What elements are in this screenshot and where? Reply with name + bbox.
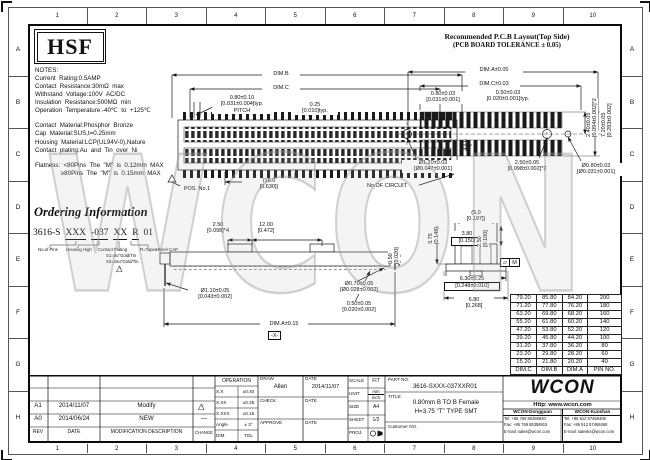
size-value: A4 xyxy=(368,404,384,410)
dim-b-cell: 69.80 xyxy=(537,311,563,319)
ruler-number: 4 xyxy=(207,7,267,24)
check-label: CHECK xyxy=(260,398,276,403)
corner-mark xyxy=(640,1,650,12)
pcb-hole-left-label: Ø1.20±0.03[Ø0.047±0.001] xyxy=(402,160,464,173)
frame-ruler-left: ABCDEFGH xyxy=(8,24,28,443)
dim-c-cell: 15.20 xyxy=(511,359,537,367)
unit-value: mm inch xyxy=(368,389,384,400)
ruler-number: 4 xyxy=(207,444,267,453)
rev-a0-date: 2014/06/24 xyxy=(48,415,100,422)
ruler-number: 1 xyxy=(28,444,88,453)
dim-a-cell: 52.20 xyxy=(562,327,588,335)
frame-ruler-top: 12345678910 xyxy=(28,7,622,24)
pin-no-cell: 40 xyxy=(588,359,622,367)
wcon-offices: WCON-Dongguan Tel: +86 769 85358920 Fax:… xyxy=(503,409,622,441)
rev-a0: A0 xyxy=(28,415,48,422)
unit-label: UNIT xyxy=(349,391,360,396)
section-height-label: 3.75[0.148] xyxy=(428,227,440,244)
ruler-letter: F xyxy=(622,287,642,340)
dim-a-cell: 68.20 xyxy=(562,311,588,319)
ruler-number: 10 xyxy=(564,444,623,453)
ordering-part: 3616-S xyxy=(33,228,60,240)
scale-value: FIT xyxy=(368,378,384,384)
pin-table-header-cell: DIM.B xyxy=(537,367,563,375)
pin-no-cell: 180 xyxy=(588,303,622,311)
pcb-hole-right-label: Ø0.80±0.03[Ø0.031±0.001] xyxy=(566,163,626,176)
dim-b-cell: 21.80 xyxy=(537,359,563,367)
pin-table: 79.20 85.80 84.20 200 71.20 77.80 76.20 … xyxy=(510,294,622,375)
dim-c-cell: 31.20 xyxy=(511,343,537,351)
hsf-logo: HSF xyxy=(34,29,106,64)
pin-table-header-row: DIM.CDIM.BDIM.APIN NO. xyxy=(511,367,622,375)
pin-table-row: 71.20 77.80 76.20 180 xyxy=(511,303,622,311)
section-width-label: (5.0[0.197]) xyxy=(453,210,499,223)
ruler-number: 3 xyxy=(147,444,207,453)
post-dia-label: Ø1.10±0.05[0.043±0.002] xyxy=(188,288,242,301)
desc-header: MODIFICATION DESCRIPTION xyxy=(100,429,193,435)
rev-a1-date: 2014/11/07 xyxy=(48,402,100,409)
ruler-number: 7 xyxy=(385,7,445,24)
circuit-count-label: No.OF CIRCUIT xyxy=(355,183,419,189)
ruler-letter: F xyxy=(8,287,28,340)
office-email: E-mail: sales@wcon.com xyxy=(503,429,562,435)
dim-a-cell: 20.20 xyxy=(562,359,588,367)
dim-c-cell: 79.20 xyxy=(511,295,537,303)
section-outer-width-label: 6.80[0.268] xyxy=(454,297,494,310)
check-date-label: DATE xyxy=(305,398,317,403)
dim-b-cell: 61.80 xyxy=(537,319,563,327)
dim-b-cell: 53.80 xyxy=(537,327,563,335)
dim-c-cell: 63.20 xyxy=(511,311,537,319)
ruler-number: 9 xyxy=(504,444,564,453)
ruler-number: 2 xyxy=(88,444,148,453)
customer-no-label: Customer NO. xyxy=(388,424,417,429)
ordering-code: 3616-S XXX -037 XX R 01 xyxy=(33,228,153,240)
ruler-letter: D xyxy=(8,182,28,235)
ruler-number: 5 xyxy=(266,7,326,24)
rev-a1-change-flag: △ 1 xyxy=(198,402,208,412)
tail-height-label: 0.50[0.020] xyxy=(388,247,400,264)
pcb-hole-pitch-label: 2.50±0.05[0.098±0.002]*2 xyxy=(494,160,560,173)
rev-header: REV xyxy=(28,429,48,435)
ruler-letter: B xyxy=(8,77,28,130)
pin-table-row: 15.20 21.80 20.20 40 xyxy=(511,359,622,367)
pcb-dim-c-label: DIM.C±0.03 xyxy=(468,81,520,87)
drawing-title-line2: H=3.75 "T" TYPE SMT xyxy=(390,408,502,415)
ruler-letter: E xyxy=(622,234,642,287)
ruler-number: 9 xyxy=(504,7,564,24)
ordering-part: XXX xyxy=(65,228,86,240)
ruler-letter: G xyxy=(8,339,28,392)
ruler-number: 8 xyxy=(445,444,505,453)
size-label: SIZE xyxy=(349,404,359,409)
frame-ruler-right: ABCDEFGH xyxy=(622,24,642,443)
part-no-value: 3616-SXXX-037XXR01 xyxy=(388,383,502,390)
dim-a-cell: 44.20 xyxy=(562,335,588,343)
dim-b-cell: 77.80 xyxy=(537,303,563,311)
side-dim-a-label: DIM.A±0.15 xyxy=(260,321,308,327)
scale-label: SCALE xyxy=(349,378,364,383)
operation-row: X.X ±0.40 xyxy=(215,386,258,397)
pin-table-row: 39.20 45.80 44.20 100 xyxy=(511,335,622,343)
dim-a-cell: 60.20 xyxy=(562,319,588,327)
part-no-label: PART NO. xyxy=(388,377,409,382)
pin-table-row: 23.20 29.80 28.20 60 xyxy=(511,351,622,359)
pos1-label: POS. No.1 xyxy=(176,186,218,192)
ordering-label-pins: No.of Pins xyxy=(38,247,58,252)
ordering-part: 01 xyxy=(144,228,154,240)
draw-name: Allen xyxy=(258,383,303,390)
date-header: DATE xyxy=(48,429,100,435)
dim-c-cell: 47.20 xyxy=(511,327,537,335)
rev-a0-change: — xyxy=(193,415,215,422)
ordering-title: Ordering Information xyxy=(34,205,148,220)
rev-a1-desc: Modify xyxy=(100,402,193,409)
ruler-number: 1 xyxy=(28,7,88,24)
dim-b-cell: 85.80 xyxy=(537,295,563,303)
pin-table-row: 31.20 37.80 36.20 80 xyxy=(511,343,622,351)
ordering-part: XX xyxy=(113,228,127,240)
third-angle-projection-icon xyxy=(369,429,384,438)
pin-no-cell: 120 xyxy=(588,327,622,335)
dim-b-cell: 45.80 xyxy=(537,335,563,343)
draw-date-label: DATE xyxy=(305,376,317,381)
approve-date-label: DATE xyxy=(305,420,317,425)
dim-a-cell: 36.20 xyxy=(562,343,588,351)
dim-c-label: DIM.C xyxy=(262,85,300,91)
dim-a-cell: 28.20 xyxy=(562,351,588,359)
proj-label: PROJ. xyxy=(349,430,363,435)
pin-no-cell: 160 xyxy=(588,311,622,319)
ruler-number: 8 xyxy=(445,7,505,24)
ruler-number: 6 xyxy=(326,444,386,453)
pin-no-cell: 60 xyxy=(588,351,622,359)
office-email: E-mail: salesks@wcon.com xyxy=(563,429,622,435)
ordering-part: -037 xyxy=(91,228,108,240)
dim-c-cell: 23.20 xyxy=(511,351,537,359)
ordering-label-plating: Contact Plating xyxy=(98,247,127,252)
ruler-letter: D xyxy=(622,182,642,235)
pcb-dim-a-label: DIM.A±0.05 xyxy=(465,67,523,73)
pin-no-cell: 80 xyxy=(588,343,622,351)
pin-table-header-cell: DIM.C xyxy=(511,367,537,375)
operation-rows: X.X ±0.40 X.XX ±0.25 X.XXX ±0.15 Angle ±… xyxy=(215,386,258,441)
pin-table-header-cell: DIM.A xyxy=(562,367,588,375)
ruler-number: 6 xyxy=(326,7,386,24)
ruler-letter: H xyxy=(622,392,642,444)
office-block: WCON-Dongguan Tel: +86 769 85358920 Fax:… xyxy=(503,409,563,441)
sheet-label: SHEET xyxy=(349,417,364,422)
pcb-layout-title: Recommended P.C.B Layout(Top Side) xyxy=(398,32,616,41)
tab-width-label: 0.25[0.010]typ. xyxy=(292,102,338,115)
length-label: (16.0[0.630]) xyxy=(242,178,296,191)
wcon-url: Http: www.wcon.com xyxy=(503,401,622,409)
change-header: CHANGE xyxy=(193,430,215,435)
pin-table-header-cell: PIN NO. xyxy=(588,367,622,375)
drawing-sheet: 12345678910 12345678910 ABCDEFGH ABCDEFG… xyxy=(0,0,650,460)
section-base-label: 6.30±0.25[0.248±0.010] xyxy=(443,276,501,291)
pin-table-row: 47.20 53.80 52.20 120 xyxy=(511,327,622,335)
pin-table-row: 79.20 85.80 84.20 200 xyxy=(511,295,622,303)
ordering-label-housing: Housing High xyxy=(66,247,92,252)
dim-c-cell: 55.20 xyxy=(511,319,537,327)
operation-row: X.XXX ±0.15 xyxy=(215,408,258,419)
ruler-letter: G xyxy=(622,339,642,392)
pcb-span-label: 7.20±0.05[0.283±0.002] xyxy=(601,103,613,137)
pin-no-cell: 100 xyxy=(588,335,622,343)
dim-b-cell: 37.80 xyxy=(537,343,563,351)
office-block: WCON-Kunshan Tel: +86 512 57468408 Fax: … xyxy=(563,409,622,441)
cap-span-label: 12.00[0.472] xyxy=(246,222,286,235)
corner-mark xyxy=(1,450,12,460)
ruler-number: 2 xyxy=(88,7,148,24)
sheet-value: 1/2 xyxy=(368,417,384,423)
drawing-title-line1: 0.80mm B TO B Female xyxy=(390,399,502,406)
ordering-label-packing: R=Tape&Reel+CAP xyxy=(140,247,178,252)
dim-c-cell: 71.20 xyxy=(511,303,537,311)
ruler-number: 3 xyxy=(147,7,207,24)
dim-b-label: DIM.B xyxy=(262,71,300,77)
operation-row: DIM TOL xyxy=(215,430,258,441)
pin-no-cell: 140 xyxy=(588,319,622,327)
section-depth-label: 2.50[0.100] xyxy=(477,230,489,247)
ordering-part: R xyxy=(132,228,138,240)
ruler-letter: C xyxy=(8,129,28,182)
ruler-number: 7 xyxy=(385,444,445,453)
ruler-letter: B xyxy=(622,77,642,130)
pcb-layout-subtitle: (PCB BOARD TOLERANCE ± 0.05) xyxy=(398,42,616,49)
dim-a-cell: 84.20 xyxy=(562,295,588,303)
ordering-plating-option: S1=0u"Gold/Tin xyxy=(106,253,136,258)
draw-date: 2014/11/07 xyxy=(303,384,348,390)
flatness-icon: ▱ xyxy=(501,259,510,266)
pin-table-row: 63.20 69.80 68.20 160 xyxy=(511,311,622,319)
datum-x-label: -X- xyxy=(268,331,281,340)
corner-mark xyxy=(640,450,650,460)
pcb-pitch-label: 0.80±0.03[0.031±0.001] xyxy=(416,91,470,104)
ruler-letter: E xyxy=(8,234,28,287)
pin-table-row: 55.20 61.80 60.20 140 xyxy=(511,319,622,327)
ruler-number: 5 xyxy=(266,444,326,453)
cap-pitch-label: 2.50[0.098]*4 xyxy=(198,222,238,235)
operation-row: X.XX ±0.25 xyxy=(215,397,258,408)
hsf-logo-text: HSF xyxy=(37,32,104,62)
ruler-letter: A xyxy=(622,24,642,77)
pitch-label: 0.80±0.10[0.031±0.004]typ.PITCH xyxy=(212,95,272,114)
ruler-letter: H xyxy=(8,392,28,444)
flatness-datum: M xyxy=(510,259,519,266)
rev-a1: A1 xyxy=(28,402,48,409)
approve-label: APPROVE xyxy=(260,420,282,425)
wcon-logo: WCON xyxy=(503,375,622,401)
draw-label: DRAW xyxy=(260,376,274,381)
pin-dia-label: Ø0.70±0.05[Ø0.028±0.002] xyxy=(330,281,388,294)
foot-label: 0.50±0.05[0.020±0.002] xyxy=(330,301,388,314)
corner-mark xyxy=(1,1,12,12)
dim-a-cell: 76.20 xyxy=(562,303,588,311)
dim-b-cell: 29.80 xyxy=(537,351,563,359)
rev-a0-desc: NEW xyxy=(100,415,193,422)
ruler-letter: A xyxy=(8,24,28,77)
operation-row: Angle ± 3° xyxy=(215,419,258,430)
pin-no-cell: 200 xyxy=(588,295,622,303)
pcb-pad-label: 0.50±0.03[0.020±0.001]typ. xyxy=(476,90,540,103)
dim-c-cell: 39.20 xyxy=(511,335,537,343)
frame-ruler-bottom: 12345678910 xyxy=(28,444,622,453)
flatness-callout: ▱ M xyxy=(500,258,520,267)
operation-title: OPERATION xyxy=(215,378,258,384)
pcb-row-label: 2.40±0.05[0.094±0.002]*2 xyxy=(586,98,598,137)
revision-flag: △ 1 xyxy=(116,264,126,274)
ruler-number: 10 xyxy=(564,7,623,24)
